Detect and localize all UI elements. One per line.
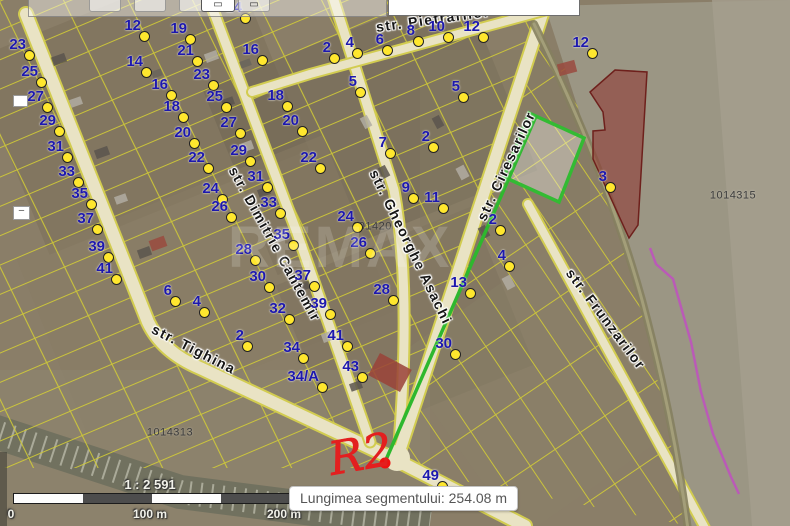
- parcel-marker-dot[interactable]: [438, 203, 449, 214]
- parcel-marker-dot[interactable]: [185, 34, 196, 45]
- parcel-marker-dot[interactable]: [587, 48, 598, 59]
- parcel-marker-dot[interactable]: [141, 67, 152, 78]
- satellite-imagery: R2: [0, 0, 790, 526]
- parcel-marker-dot[interactable]: [325, 309, 336, 320]
- measurement-tooltip: Lungimea segmentului: 254.08 m: [289, 486, 518, 511]
- parcel-marker-dot[interactable]: [86, 199, 97, 210]
- parcel-marker-dot[interactable]: [42, 102, 53, 113]
- parcel-marker-dot[interactable]: [495, 225, 506, 236]
- scale-bar: [13, 493, 291, 504]
- parcel-marker-dot[interactable]: [342, 341, 353, 352]
- image-edge-strip: [0, 452, 7, 526]
- parcel-marker-dot[interactable]: [54, 126, 65, 137]
- parcel-marker-dot[interactable]: [450, 349, 461, 360]
- scale-segment: [14, 494, 83, 503]
- parcel-marker-dot[interactable]: [284, 314, 295, 325]
- parcel-marker-dot[interactable]: [443, 32, 454, 43]
- parcel-marker-dot[interactable]: [217, 194, 228, 205]
- parcel-marker-dot[interactable]: [250, 255, 261, 266]
- scale-tick-0: 0: [8, 507, 15, 521]
- parcel-marker-dot[interactable]: [262, 182, 273, 193]
- parcel-marker-dot[interactable]: [605, 182, 616, 193]
- parcel-marker-dot[interactable]: [365, 248, 376, 259]
- parcel-marker-dot[interactable]: [62, 152, 73, 163]
- measure-tool-button[interactable]: ▭: [201, 0, 235, 12]
- parcel-marker-dot[interactable]: [385, 148, 396, 159]
- parcel-marker-dot[interactable]: [352, 48, 363, 59]
- parcel-marker-dot[interactable]: [504, 261, 515, 272]
- parcel-marker-dot[interactable]: [24, 50, 35, 61]
- parcel-marker-dot[interactable]: [178, 112, 189, 123]
- handwritten-annotation: R2: [323, 422, 396, 486]
- parcel-marker-dot[interactable]: [235, 128, 246, 139]
- toolbar-button[interactable]: [134, 0, 166, 12]
- parcel-marker-dot[interactable]: [92, 224, 103, 235]
- parcel-marker-dot[interactable]: [166, 90, 177, 101]
- map-viewport[interactable]: R2 str. Pietrarilorstr. Gheorghe Asachis…: [0, 0, 790, 526]
- parcel-marker-dot[interactable]: [189, 138, 200, 149]
- parcel-marker-dot[interactable]: [382, 45, 393, 56]
- parcel-marker-dot[interactable]: [388, 295, 399, 306]
- parcel-marker-dot[interactable]: [199, 307, 210, 318]
- parcel-marker-dot[interactable]: [297, 126, 308, 137]
- parcel-marker-dot[interactable]: [458, 92, 469, 103]
- parcel-marker-dot[interactable]: [329, 53, 340, 64]
- toolbar-button[interactable]: [89, 0, 121, 12]
- parcel-marker-dot[interactable]: [245, 156, 256, 167]
- parcel-marker-dot[interactable]: [139, 31, 150, 42]
- parcel-marker-dot[interactable]: [317, 382, 328, 393]
- scale-ratio-label: 1 : 2 591: [124, 477, 175, 492]
- parcel-marker-dot[interactable]: [282, 101, 293, 112]
- parcel-marker-dot[interactable]: [208, 80, 219, 91]
- parcel-marker-dot[interactable]: [192, 56, 203, 67]
- map-toolbar: ▭ ▭: [28, 0, 387, 17]
- parcel-marker-dot[interactable]: [357, 372, 368, 383]
- parcel-marker-dot[interactable]: [103, 252, 114, 263]
- zoom-out-button[interactable]: −: [13, 206, 30, 220]
- parcel-marker-dot[interactable]: [465, 288, 476, 299]
- parcel-marker-dot[interactable]: [288, 240, 299, 251]
- map-control-box[interactable]: [13, 95, 28, 107]
- parcel-marker-dot[interactable]: [111, 274, 122, 285]
- parcel-marker-dot[interactable]: [264, 282, 275, 293]
- parcel-marker-dot[interactable]: [309, 281, 320, 292]
- parcel-marker-dot[interactable]: [478, 32, 489, 43]
- parcel-marker-dot[interactable]: [298, 353, 309, 364]
- parcel-marker-dot[interactable]: [203, 163, 214, 174]
- parcel-marker-dot[interactable]: [315, 163, 326, 174]
- toolbar-results-panel: [388, 0, 580, 16]
- parcel-marker-dot[interactable]: [408, 193, 419, 204]
- parcel-marker-dot[interactable]: [73, 177, 84, 188]
- parcel-marker-dot[interactable]: [170, 296, 181, 307]
- parcel-marker-dot[interactable]: [355, 87, 366, 98]
- measure-distance-icon: ▭: [202, 0, 234, 17]
- parcel-marker-dot[interactable]: [352, 222, 363, 233]
- parcel-marker-dot[interactable]: [226, 212, 237, 223]
- scale-tick-100: 100 m: [133, 507, 167, 521]
- parcel-marker-dot[interactable]: [221, 102, 232, 113]
- parcel-marker-dot[interactable]: [242, 341, 253, 352]
- parcel-marker-dot[interactable]: [36, 77, 47, 88]
- parcel-marker-dot[interactable]: [413, 36, 424, 47]
- scale-segment: [152, 494, 221, 503]
- scale-segment: [83, 494, 152, 503]
- area-tool-icon: ▭: [239, 0, 269, 17]
- parcel-marker-dot[interactable]: [275, 208, 286, 219]
- scale-segment: [221, 494, 290, 503]
- parcel-marker-dot[interactable]: [257, 55, 268, 66]
- toolbar-button[interactable]: ▭: [238, 0, 270, 12]
- parcel-marker-dot[interactable]: [428, 142, 439, 153]
